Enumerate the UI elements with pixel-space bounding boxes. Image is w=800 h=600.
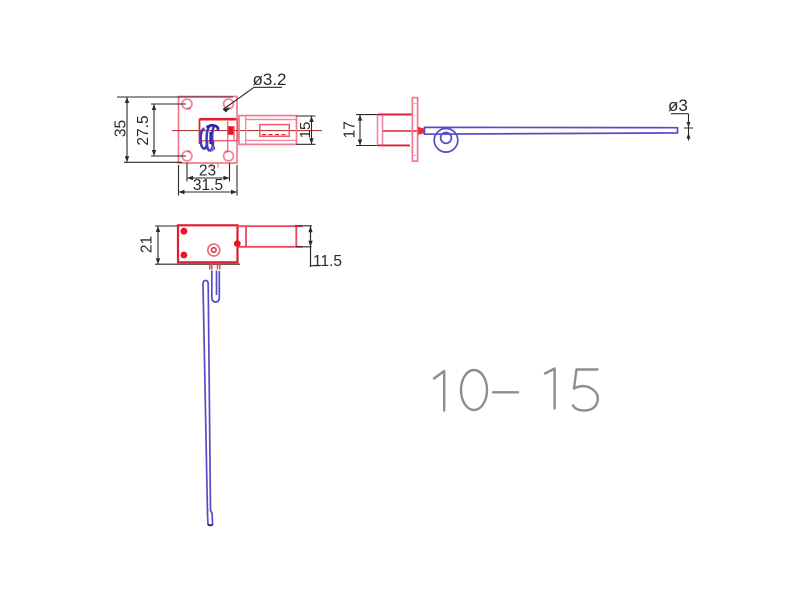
svg-text:21: 21	[139, 236, 156, 253]
svg-text:35: 35	[113, 120, 130, 137]
svg-text:17: 17	[342, 121, 359, 138]
svg-text:31.5: 31.5	[193, 177, 223, 194]
svg-text:ø3.2: ø3.2	[253, 70, 287, 89]
svg-text:11.5: 11.5	[313, 253, 342, 270]
svg-text:15: 15	[297, 122, 314, 139]
svg-text:27.5: 27.5	[135, 115, 152, 145]
svg-text:ø3: ø3	[668, 96, 688, 115]
